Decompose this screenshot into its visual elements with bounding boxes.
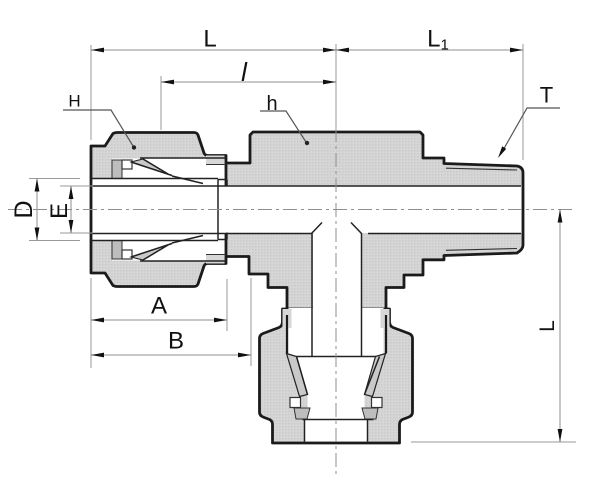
svg-text:A: A [151,293,167,320]
svg-text:L: L [536,320,559,332]
svg-text:E: E [46,203,73,219]
svg-text:B: B [168,328,184,355]
svg-text:L: L [203,26,216,53]
svg-text:D: D [10,200,38,218]
svg-text:T: T [540,83,553,108]
svg-text:H: H [68,92,80,111]
svg-text:h: h [266,93,277,115]
